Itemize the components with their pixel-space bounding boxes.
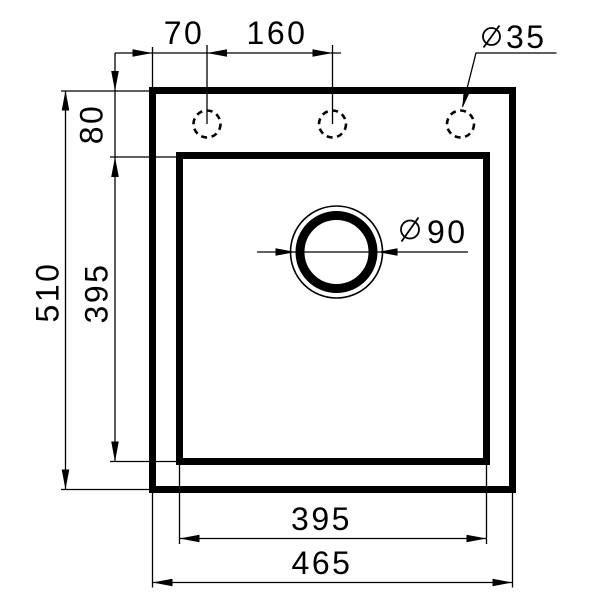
diameter-icon [483, 26, 500, 48]
dim-rim-to-bowl-label: 80 [74, 104, 110, 145]
technical-drawing: 70 160 35 80 510 395 90 395 465 [0, 0, 600, 600]
arrowhead [378, 248, 398, 256]
arrowhead [463, 88, 472, 108]
arrowhead [133, 49, 153, 57]
arrowhead [276, 248, 296, 256]
bowl-outline [180, 156, 487, 462]
arrowhead [62, 91, 70, 111]
drawing-canvas: 70 160 35 80 510 395 90 395 465 [0, 0, 600, 600]
arrowhead [313, 49, 333, 57]
dim-faucet-hole-diameter-label: 35 [506, 19, 547, 55]
arrowhead [111, 157, 119, 177]
arrowhead [111, 442, 119, 462]
arrowhead [467, 535, 487, 543]
arrowhead [493, 579, 513, 587]
arrowhead [180, 535, 200, 543]
dim-bowl-width-label: 395 [291, 501, 352, 537]
dim-drain-diameter-label: 90 [427, 214, 468, 250]
arrowhead [111, 71, 119, 91]
dim-faucet-hole-offset-label: 70 [164, 15, 205, 51]
arrowhead [207, 49, 227, 57]
diameter-icon [401, 218, 419, 242]
arrowhead [62, 470, 70, 490]
faucet-hole-circle [447, 111, 474, 138]
dim-overall-width-label: 465 [292, 545, 353, 581]
dim-overall-depth-label: 510 [30, 262, 66, 323]
dim-faucet-hole-spacing-label: 160 [247, 15, 308, 51]
arrowhead [153, 579, 173, 587]
dim-bowl-depth-label: 395 [79, 263, 115, 324]
